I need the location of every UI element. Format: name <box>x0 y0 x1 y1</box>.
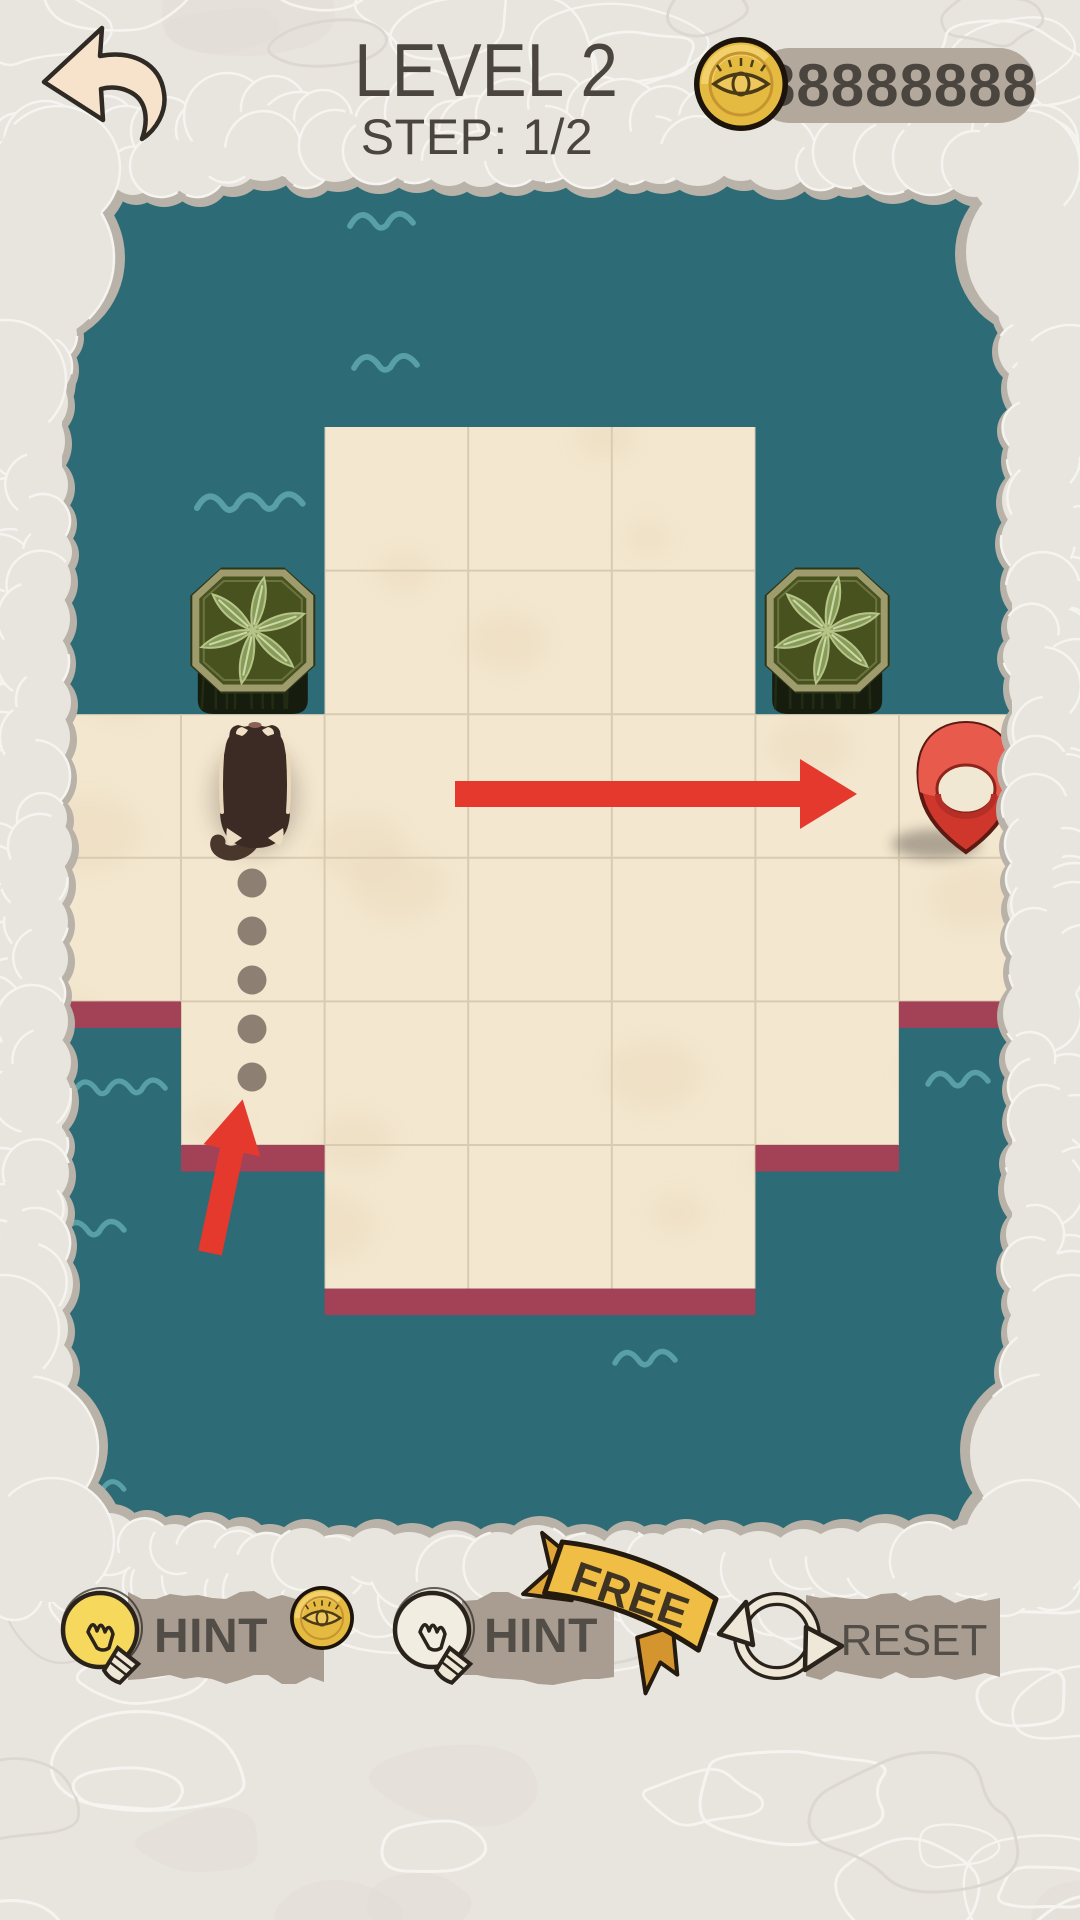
svg-text:RESET: RESET <box>841 1616 988 1665</box>
svg-text:88888888: 88888888 <box>762 52 1037 119</box>
svg-text:HINT: HINT <box>484 1610 598 1663</box>
svg-text:STEP: 1/2: STEP: 1/2 <box>361 109 593 165</box>
svg-text:HINT: HINT <box>154 1610 268 1663</box>
svg-text:LEVEL 2: LEVEL 2 <box>354 29 618 113</box>
